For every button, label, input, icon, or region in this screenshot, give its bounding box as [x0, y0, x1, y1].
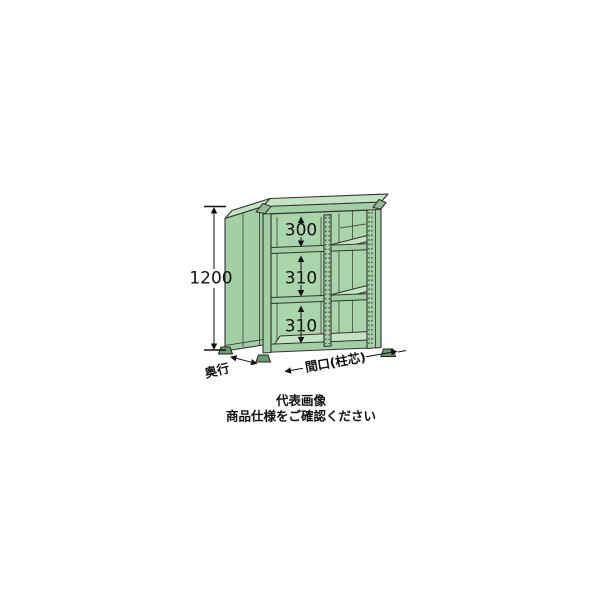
rack-foot-front-left [256, 355, 271, 362]
caption-line1: 代表画像 [275, 393, 327, 408]
product-diagram-canvas: 1200 300 310 310 奥行 間口(柱芯) 代表画像 商品仕様をご確認… [0, 0, 600, 600]
dimension-arrow-front [244, 360, 257, 363]
rack-middle-post [324, 215, 331, 347]
shelf-gap-label-3: 310 [285, 317, 317, 337]
dimension-arrow-left [286, 368, 304, 371]
caption-line2: 商品仕様をご確認ください [226, 409, 376, 424]
dimension-arrow-back [231, 357, 244, 360]
height-dimension-label: 1200 [189, 269, 232, 289]
shelf-gap-label-1: 300 [285, 221, 317, 241]
rack-right-post [367, 203, 381, 349]
caption: 代表画像 商品仕様をご確認ください [226, 393, 376, 424]
rack-left-post [263, 206, 271, 353]
width-dimension-label: 間口(柱芯) [304, 349, 367, 374]
depth-dimension-label: 奥行 [203, 360, 231, 381]
depth-dimension: 奥行 [203, 357, 257, 381]
width-dimension: 間口(柱芯) [286, 349, 407, 374]
shelf-gap-label-2: 310 [285, 269, 317, 289]
